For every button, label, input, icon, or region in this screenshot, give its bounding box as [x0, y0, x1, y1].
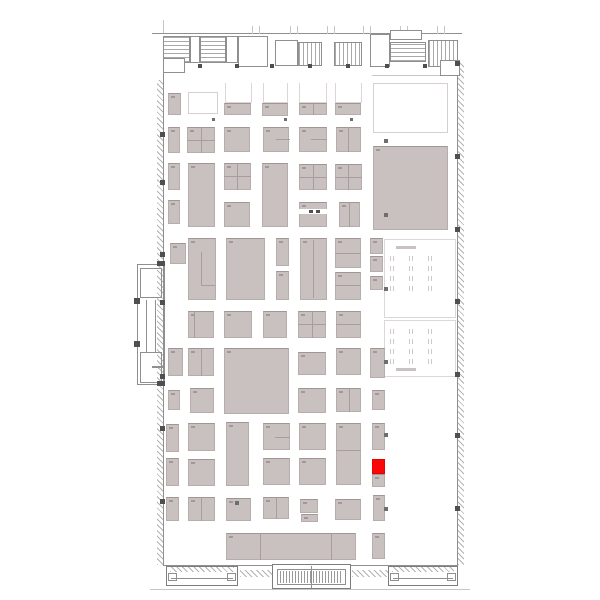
column-marker — [423, 64, 427, 68]
service-room — [370, 34, 390, 67]
booth[interactable] — [168, 200, 180, 224]
column-marker — [198, 64, 202, 68]
column-marker — [385, 64, 389, 68]
booth-divider — [201, 497, 202, 521]
column-marker-hall — [212, 118, 215, 121]
column-marker — [270, 64, 274, 68]
column-marker-hall — [384, 139, 388, 143]
booth-divider — [194, 311, 195, 338]
booth[interactable] — [336, 348, 361, 375]
booth-divider — [335, 177, 362, 178]
column-marker — [455, 372, 460, 377]
outer-edge-line — [252, 26, 253, 34]
booth[interactable] — [370, 238, 383, 254]
column-marker-hall — [284, 118, 287, 121]
booth[interactable] — [168, 127, 180, 153]
seating-table-row — [390, 286, 446, 291]
booth-divider — [335, 285, 361, 286]
booth-divider — [276, 497, 277, 519]
seating-table-row — [390, 349, 446, 354]
booth[interactable] — [301, 514, 318, 522]
service-room — [275, 40, 298, 66]
entrance-inner — [390, 573, 399, 581]
entrance-inner — [447, 573, 456, 581]
booth[interactable] — [299, 458, 326, 485]
annex-wall — [155, 300, 156, 352]
booth[interactable] — [168, 348, 183, 376]
column-marker — [455, 154, 460, 159]
booth-open[interactable] — [335, 83, 362, 103]
window-band — [458, 62, 464, 565]
booth-open[interactable] — [263, 83, 288, 103]
booth-free[interactable] — [188, 92, 218, 114]
booth[interactable] — [299, 202, 327, 227]
booth[interactable] — [276, 271, 289, 300]
service-room — [200, 36, 226, 63]
column-marker — [160, 300, 165, 305]
booth-divider — [276, 139, 290, 140]
column-marker-hall — [384, 507, 388, 511]
booth[interactable] — [262, 103, 288, 116]
service-room — [190, 36, 200, 63]
entrance-doors — [170, 567, 234, 572]
booth[interactable] — [224, 202, 250, 227]
booth-divider — [275, 437, 290, 438]
booth-divider — [298, 324, 326, 325]
booth[interactable] — [188, 423, 215, 451]
entrance-inner — [168, 573, 177, 581]
booth[interactable] — [335, 103, 361, 115]
booth[interactable] — [188, 238, 216, 300]
annex-wall — [146, 300, 147, 352]
service-room — [163, 58, 185, 73]
column-marker — [160, 180, 165, 185]
service-room — [298, 42, 322, 66]
booth-divider — [201, 285, 215, 286]
fixture-dot — [309, 210, 313, 213]
booth-divider — [201, 252, 202, 285]
booth-divider — [331, 533, 332, 560]
service-room — [390, 42, 426, 62]
column-marker-hall — [350, 118, 353, 121]
booth[interactable] — [370, 256, 383, 272]
booth-divider — [335, 253, 361, 254]
column-marker — [346, 64, 350, 68]
booth[interactable] — [299, 423, 326, 450]
booth-detail — [299, 209, 327, 214]
booth[interactable] — [226, 533, 356, 560]
column-marker-hall — [384, 360, 388, 364]
column-marker — [455, 299, 460, 304]
booth[interactable] — [335, 499, 361, 520]
booth-divider — [349, 388, 350, 412]
booth-divider — [299, 177, 327, 178]
entrance-line — [171, 578, 233, 579]
booth[interactable] — [372, 474, 385, 487]
booth-free[interactable] — [373, 83, 448, 133]
column-marker — [160, 252, 165, 257]
booth-divider — [313, 240, 314, 298]
seating-table-row — [390, 329, 446, 334]
service-room — [226, 36, 238, 63]
seating-table-row — [390, 266, 446, 271]
outer-edge-line — [437, 26, 438, 34]
annex-wall — [152, 366, 163, 368]
booth[interactable] — [166, 497, 179, 521]
booth[interactable] — [224, 127, 250, 152]
outer-edge-line — [163, 20, 164, 33]
outer-edge-line — [150, 589, 470, 590]
booth[interactable] — [298, 388, 326, 413]
selected-booth[interactable] — [372, 459, 385, 474]
floor-plan — [0, 0, 600, 600]
seating-table-row — [390, 359, 446, 364]
outer-edge-line — [327, 26, 328, 34]
column-marker-hall — [235, 501, 239, 505]
outer-edge-line — [297, 26, 298, 34]
booth[interactable] — [168, 163, 180, 190]
column-marker — [157, 261, 165, 266]
column-marker — [235, 64, 239, 68]
entrance-doors — [392, 567, 454, 572]
booth-divider — [260, 533, 261, 560]
booth[interactable] — [263, 311, 287, 338]
column-marker-hall — [384, 287, 388, 291]
booth[interactable] — [166, 458, 179, 486]
booth[interactable] — [166, 424, 179, 452]
booth[interactable] — [370, 348, 385, 378]
booth[interactable] — [190, 388, 214, 413]
booth[interactable] — [276, 238, 289, 266]
column-marker — [160, 499, 165, 504]
column-marker — [160, 132, 165, 137]
outer-edge-line — [259, 26, 260, 34]
booth[interactable] — [298, 352, 326, 375]
booth[interactable] — [226, 238, 265, 300]
column-marker — [455, 227, 460, 232]
fixture-dot — [316, 210, 320, 213]
booth[interactable] — [224, 103, 251, 115]
column-marker — [160, 426, 165, 431]
booth-divider — [201, 348, 202, 376]
outer-edge-line — [334, 26, 335, 34]
booth[interactable] — [336, 423, 361, 485]
booth[interactable] — [263, 458, 290, 485]
annex-structure — [140, 268, 162, 298]
column-marker — [455, 61, 460, 66]
column-marker — [455, 506, 460, 511]
booth-divider — [336, 450, 361, 451]
booth[interactable] — [188, 459, 215, 486]
booth[interactable] — [372, 390, 385, 410]
outer-edge-line — [363, 26, 364, 34]
booth[interactable] — [168, 93, 181, 115]
booth[interactable] — [188, 311, 214, 338]
booth[interactable] — [300, 499, 318, 513]
booth[interactable] — [224, 348, 289, 414]
booth[interactable] — [226, 422, 249, 486]
booth[interactable] — [335, 272, 361, 300]
booth-divider — [336, 324, 361, 325]
booth-divider — [311, 139, 327, 140]
column-marker — [160, 374, 165, 379]
booth-open[interactable] — [225, 83, 252, 103]
booth-divider — [349, 202, 350, 227]
seating-table-row — [390, 256, 446, 261]
outer-edge-line — [370, 26, 371, 34]
booth[interactable] — [224, 311, 252, 338]
column-marker-hall — [384, 213, 388, 217]
booth-open[interactable] — [299, 83, 327, 103]
service-room — [390, 30, 422, 40]
window-band — [240, 570, 272, 577]
booth-divider — [348, 127, 349, 152]
booth[interactable] — [188, 163, 215, 227]
seating-table-row — [390, 339, 446, 344]
entrance-line — [311, 566, 312, 588]
column-marker — [308, 64, 312, 68]
outer-edge-line — [444, 26, 445, 34]
entrance-inner — [227, 573, 236, 581]
column-marker — [455, 433, 460, 438]
booth[interactable] — [370, 276, 383, 290]
booth-divider — [313, 103, 314, 115]
column-marker-hall — [384, 433, 388, 437]
booth[interactable] — [168, 390, 180, 410]
window-band — [352, 570, 388, 577]
column-marker — [157, 381, 165, 386]
outer-edge-line — [290, 26, 291, 34]
booth[interactable] — [373, 146, 448, 230]
column-marker — [134, 298, 140, 304]
booth[interactable] — [170, 243, 186, 264]
booth[interactable] — [372, 533, 385, 559]
booth-divider — [187, 140, 215, 141]
booth-divider — [224, 176, 251, 177]
seating-table-row — [390, 276, 446, 281]
entrance-line — [393, 578, 453, 579]
service-room — [238, 36, 268, 67]
seating-counter — [396, 246, 416, 249]
column-marker — [134, 341, 140, 347]
seating-counter — [396, 368, 416, 371]
service-room — [334, 42, 362, 66]
booth[interactable] — [262, 163, 288, 227]
